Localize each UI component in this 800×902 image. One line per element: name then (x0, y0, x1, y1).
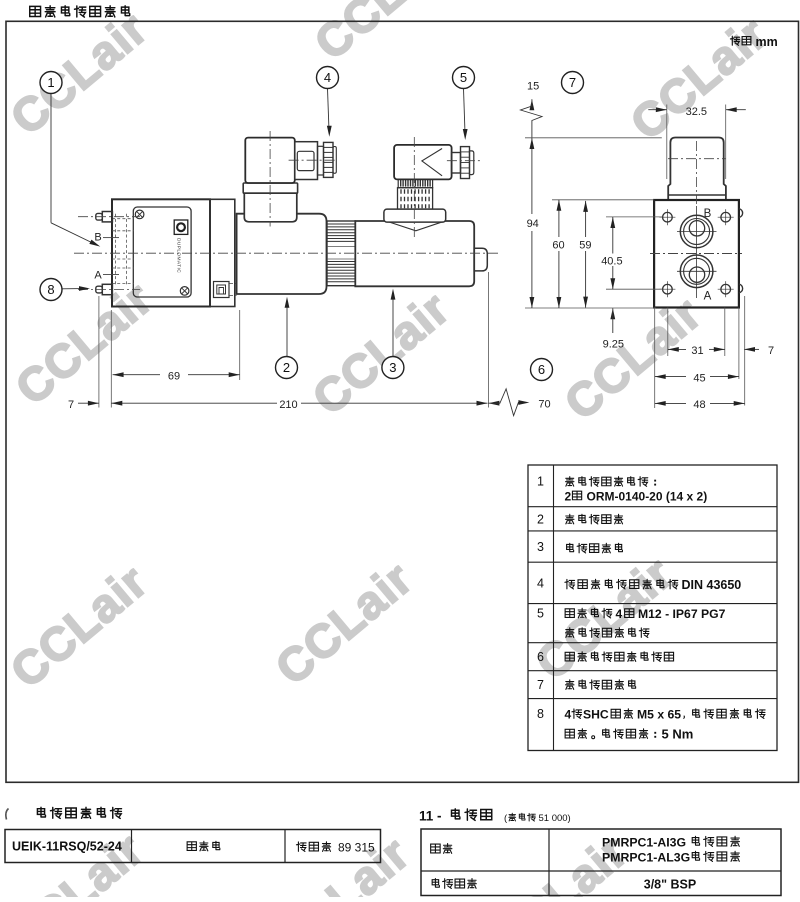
svg-text:5 Nm: 5 Nm (662, 727, 694, 742)
svg-text:31: 31 (691, 345, 703, 357)
svg-text:ORM-0140-20 (14 x 2): ORM-0140-20 (14 x 2) (587, 489, 708, 503)
svg-text:B: B (94, 232, 101, 244)
svg-text:CCLair: CCLair (0, 1, 157, 145)
svg-text:7: 7 (537, 678, 544, 692)
svg-text:1: 1 (47, 75, 54, 90)
svg-text:4: 4 (324, 70, 331, 85)
svg-text:B: B (704, 208, 712, 220)
svg-text:6: 6 (537, 650, 544, 664)
svg-text:8: 8 (537, 707, 544, 721)
svg-text:59: 59 (579, 240, 591, 252)
svg-text:60: 60 (552, 240, 564, 252)
svg-text:CCLair: CCLair (265, 551, 422, 695)
svg-text:4: 4 (565, 708, 572, 722)
svg-text:M12 - IP67 PG7: M12 - IP67 PG7 (638, 607, 726, 621)
svg-text:6: 6 (538, 362, 545, 377)
svg-text:PMRPC1-AI3G: PMRPC1-AI3G (602, 836, 686, 850)
svg-text:PMRPC1-AL3G: PMRPC1-AL3G (602, 851, 690, 865)
svg-text:CCLair: CCLair (0, 554, 157, 698)
svg-text:DUPLOMATIC: DUPLOMATIC (176, 238, 182, 273)
svg-text:8: 8 (47, 282, 54, 297)
svg-text:(: ( (504, 813, 508, 824)
svg-text:CCLair: CCLair (5, 271, 162, 415)
svg-text:94: 94 (527, 218, 539, 230)
svg-text:32.5: 32.5 (686, 106, 707, 118)
svg-text:4: 4 (616, 607, 623, 621)
svg-text:1: 1 (537, 475, 544, 489)
svg-text:2: 2 (283, 360, 290, 375)
svg-text:A: A (704, 291, 712, 303)
svg-text:CCLair: CCLair (620, 6, 777, 150)
svg-text:4: 4 (537, 577, 544, 591)
svg-text:5: 5 (537, 607, 544, 621)
svg-text:5: 5 (460, 70, 467, 85)
svg-text:210: 210 (279, 399, 297, 411)
svg-text:2: 2 (565, 489, 572, 503)
svg-text:DIN 43650: DIN 43650 (682, 578, 742, 592)
svg-text:M5 x 65: M5 x 65 (637, 708, 681, 722)
svg-text:40.5: 40.5 (601, 255, 622, 267)
svg-text:CCLair: CCLair (304, 0, 461, 70)
svg-text:7: 7 (569, 75, 576, 90)
svg-text:CCLair: CCLair (262, 826, 419, 897)
svg-text:SHC: SHC (583, 708, 609, 722)
svg-text:7: 7 (768, 345, 774, 357)
svg-text:A: A (94, 270, 102, 282)
svg-text:3: 3 (537, 540, 544, 554)
svg-text:15: 15 (527, 81, 539, 93)
svg-text:3/8" BSP: 3/8" BSP (644, 878, 696, 892)
svg-text:UEIK-11RSQ/52-24: UEIK-11RSQ/52-24 (12, 840, 122, 854)
svg-text:7: 7 (68, 399, 74, 411)
svg-text:48: 48 (693, 399, 705, 411)
svg-text:11 -: 11 - (419, 809, 442, 824)
svg-text:CCLair: CCLair (0, 822, 153, 897)
svg-text:mm: mm (756, 35, 778, 49)
svg-text:89 315: 89 315 (338, 841, 375, 855)
svg-text:69: 69 (168, 371, 180, 383)
svg-text:70: 70 (538, 398, 550, 410)
svg-text:9.25: 9.25 (603, 339, 624, 351)
svg-text:2: 2 (537, 513, 544, 527)
svg-text:45: 45 (693, 372, 705, 384)
svg-text:3: 3 (389, 360, 396, 375)
svg-text:51 000): 51 000) (539, 813, 571, 824)
